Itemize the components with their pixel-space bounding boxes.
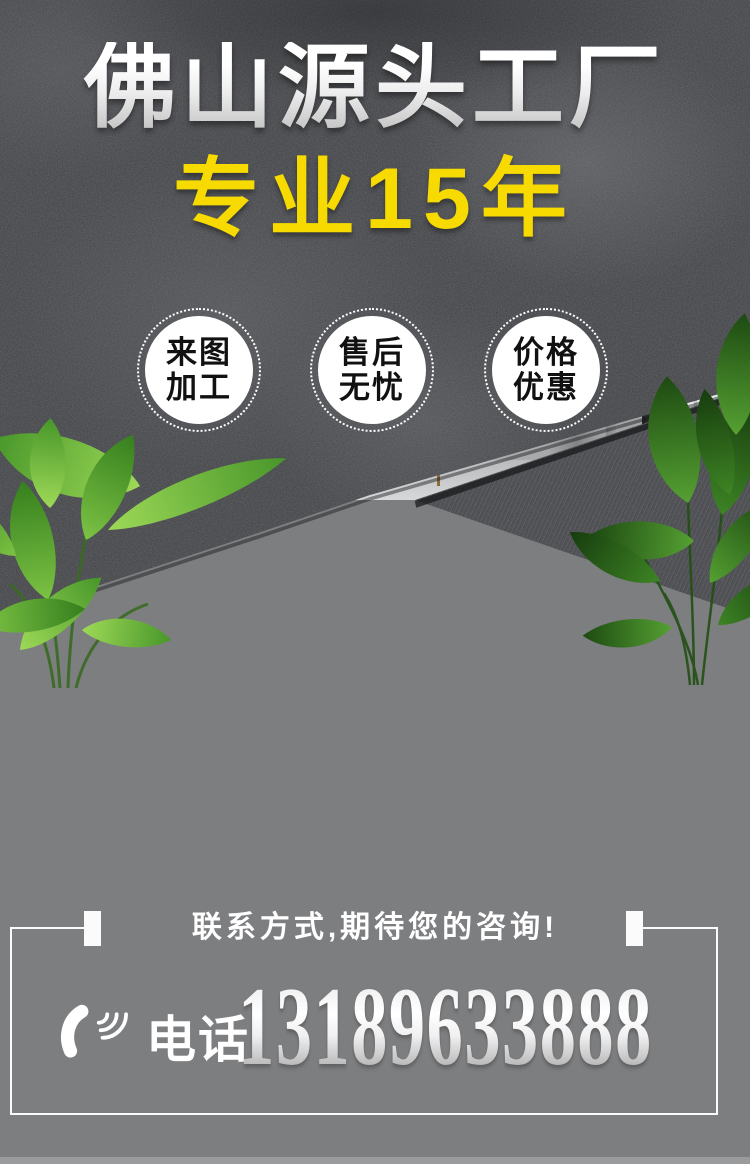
phone-handset-icon <box>56 1002 134 1066</box>
badge-text-line: 优惠 <box>513 370 579 405</box>
badge-disc: 来图 加工 <box>145 316 253 424</box>
plant-left <box>0 388 320 688</box>
plant-right <box>598 375 750 685</box>
promo-poster: 佛山源头工厂 专业15年 来图 加工 售后 无忧 价格 优惠 联系方式,期待您的… <box>0 0 750 1164</box>
badge-text-line: 加工 <box>166 370 232 405</box>
page-title: 佛山源头工厂 <box>0 42 750 134</box>
badge-after-sales: 售后 无忧 <box>310 308 434 432</box>
badge-custom-processing: 来图 加工 <box>137 308 261 432</box>
badge-text-line: 价格 <box>513 335 579 370</box>
badge-disc: 售后 无忧 <box>318 316 426 424</box>
badge-text-line: 售后 <box>339 335 405 370</box>
badge-disc: 价格 优惠 <box>492 316 600 424</box>
badge-price: 价格 优惠 <box>484 308 608 432</box>
badge-text-line: 来图 <box>166 335 232 370</box>
phone-row: 电话: 13189633888 <box>0 972 750 1102</box>
phone-number: 13189633888 <box>238 972 653 1082</box>
page-subtitle: 专业15年 <box>0 156 750 242</box>
badge-text-line: 无忧 <box>339 370 405 405</box>
frame-line <box>10 1113 718 1115</box>
contact-footer: 联系方式,期待您的咨询! 电话: 13189633888 <box>0 877 750 1164</box>
contact-heading: 联系方式,期待您的咨询! <box>0 906 750 950</box>
bottom-strip <box>0 1157 750 1164</box>
